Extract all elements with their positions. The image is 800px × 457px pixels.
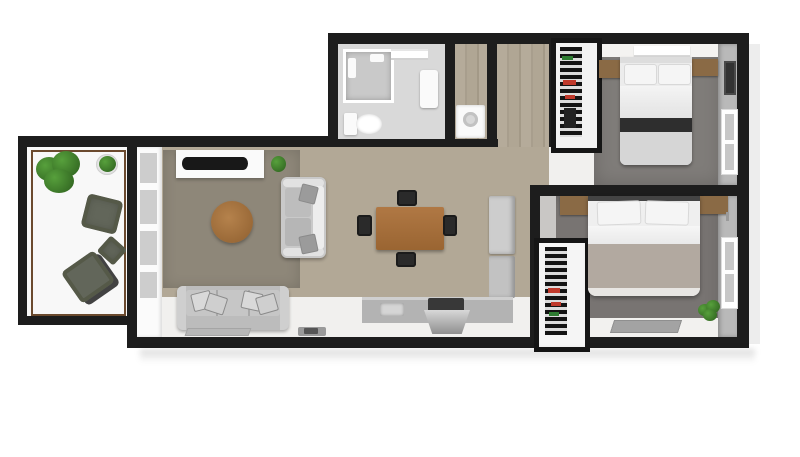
main-top-wall xyxy=(18,136,338,147)
window-pane xyxy=(725,144,734,170)
bedroom1-pillow-left xyxy=(624,64,657,85)
door-glass-pane xyxy=(140,190,157,224)
door-glass-pane xyxy=(140,231,157,265)
kitchen-sink xyxy=(380,303,404,316)
refrigerator xyxy=(489,196,515,254)
bedroom-divider-wall xyxy=(530,185,749,196)
bathroom-left-wall xyxy=(328,33,338,147)
shower-shelf xyxy=(370,54,384,62)
bedroom1-duvet-dark-band xyxy=(620,118,692,132)
window-pane xyxy=(725,274,734,302)
bedroom2-floor-mat xyxy=(610,320,682,333)
bedroom1-nightstand-right xyxy=(692,59,718,76)
bedroom2-window xyxy=(722,238,737,308)
bedroom2-left-wall-top xyxy=(540,196,556,240)
washer-door xyxy=(463,112,478,127)
bedroom1-wall-tv xyxy=(724,61,736,95)
window-pane xyxy=(725,114,734,140)
balcony-plant-small xyxy=(99,156,116,172)
door-glass-pane xyxy=(140,272,157,298)
door-glass-pane xyxy=(140,153,157,183)
plant-foliage xyxy=(44,169,74,193)
floor-mat xyxy=(185,328,252,336)
bedroom2-duvet-edge xyxy=(588,288,700,296)
loveseat-pillow xyxy=(298,233,318,254)
upper-exterior-top-wall xyxy=(328,33,749,44)
towel-shelf xyxy=(391,49,428,60)
dining-chair-left xyxy=(357,215,372,236)
bedroom2-headboard xyxy=(588,196,700,201)
bathroom-right-wall xyxy=(445,40,455,147)
closet1-red-item xyxy=(563,80,576,85)
dining-table xyxy=(376,207,444,250)
shower-fixture xyxy=(348,58,356,78)
bedroom1-headboard xyxy=(620,57,692,63)
laundry-right-wall xyxy=(487,40,497,147)
tv xyxy=(182,157,248,170)
window-pane xyxy=(725,242,734,270)
main-bottom-wall xyxy=(127,337,749,348)
bedroom2-duvet-fold xyxy=(588,226,700,244)
floor-plan-render xyxy=(0,0,800,457)
closet2-red-item xyxy=(551,302,561,306)
bedroom2-nightstand-left xyxy=(560,196,588,215)
door-mat-item xyxy=(304,328,318,334)
bedroom1-headboard-shelf xyxy=(634,46,690,57)
balcony-plant-large xyxy=(36,151,84,195)
dining-chair-right xyxy=(443,215,457,236)
closet2-red-item xyxy=(548,288,560,293)
bedroom2-plant xyxy=(698,300,720,322)
hallway-floor xyxy=(497,44,549,147)
bedroom1-window xyxy=(722,110,737,174)
building-shadow xyxy=(140,349,755,363)
bedroom1-nightstand-left xyxy=(599,60,621,78)
closet1-red-item xyxy=(565,95,575,99)
bedroom2-wall-switch xyxy=(726,212,729,221)
closet1-dark-item xyxy=(564,108,576,128)
exterior-window-sill xyxy=(749,44,760,344)
kitchen-tall-cabinet xyxy=(489,256,515,298)
closet2-green-item xyxy=(549,312,559,316)
closet1-green-item xyxy=(562,56,573,60)
bedroom2-pillow-left xyxy=(597,200,642,226)
toilet-bowl xyxy=(356,114,382,134)
balcony-left-wall xyxy=(18,136,27,324)
bathroom-door xyxy=(420,70,438,108)
bathroom-bottom-wall xyxy=(334,139,498,147)
bedroom2-nightstand-right xyxy=(700,196,728,214)
balcony-bottom-wall xyxy=(18,316,135,325)
small-plant-icon xyxy=(271,156,286,172)
bedroom1-duvet-top xyxy=(620,86,692,118)
dining-chair-bottom xyxy=(396,252,416,267)
plant-foliage xyxy=(703,309,717,321)
bedroom1-duvet-lower xyxy=(620,132,692,165)
bedroom1-pillow-right xyxy=(658,64,691,85)
round-coffee-table xyxy=(211,201,253,243)
sofa-arm-left xyxy=(177,286,186,330)
balcony-living-divider-wall xyxy=(127,136,137,348)
bedroom2-duvet xyxy=(588,244,700,288)
bedroom2-pillow-right xyxy=(645,200,690,226)
dining-chair-top xyxy=(397,190,417,206)
sofa-arm-right xyxy=(280,286,289,330)
